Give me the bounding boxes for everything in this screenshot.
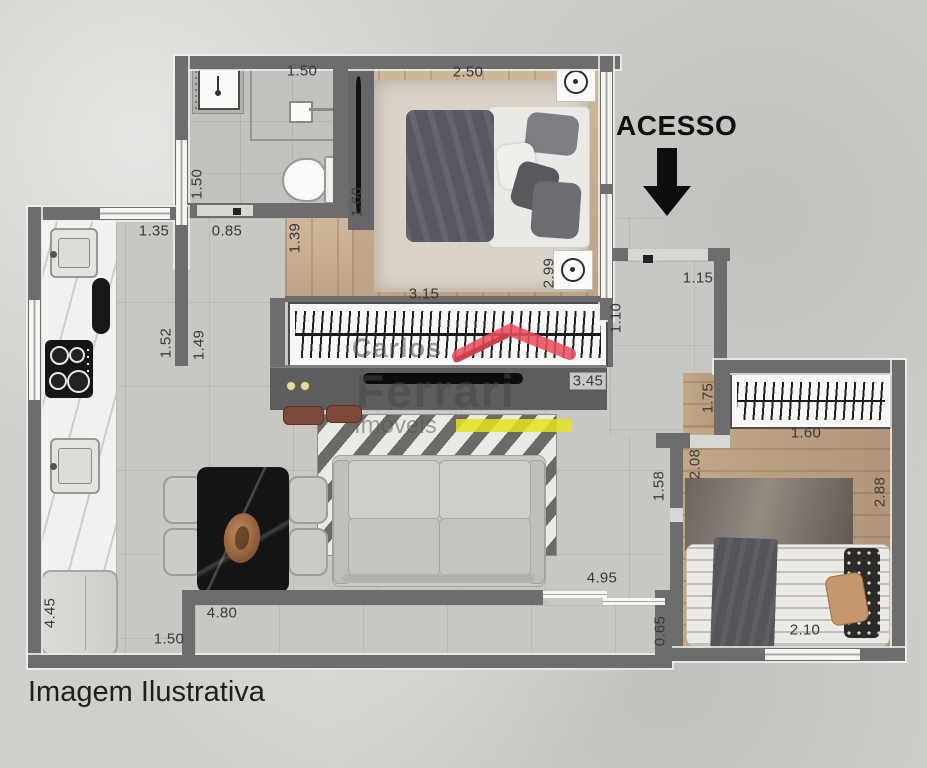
wall-balcony-top bbox=[182, 590, 543, 605]
measurement-label: 1.60 bbox=[349, 187, 366, 217]
measurement-label: 4.80 bbox=[207, 605, 237, 622]
access-arrow-icon bbox=[657, 148, 677, 188]
bed-blanket bbox=[710, 537, 778, 651]
kitchen-sink-bottom bbox=[50, 438, 100, 494]
measurement-label: 1.50 bbox=[287, 63, 317, 80]
access-label: ACESSO bbox=[616, 110, 737, 142]
measurement-label: 1.49 bbox=[191, 330, 208, 360]
sofa-back-cushion bbox=[348, 460, 440, 520]
measurement-label: 0.85 bbox=[212, 223, 242, 240]
window-bedroom2-bottom bbox=[765, 649, 860, 660]
sofa-seat-cushion bbox=[348, 518, 440, 576]
dining-table bbox=[197, 467, 289, 593]
window-bathroom-left bbox=[176, 140, 187, 225]
kitchen-island bbox=[270, 365, 607, 410]
measurement-label: 3.45 bbox=[570, 373, 606, 390]
door-opening-entry bbox=[628, 249, 708, 260]
door-jamb-entry bbox=[643, 255, 653, 263]
measurement-label: 1.10 bbox=[608, 303, 625, 333]
wall-bathroom-bedroom-divider bbox=[333, 56, 348, 212]
wall-top bbox=[175, 56, 620, 69]
door-opening-bedroom2 bbox=[690, 435, 730, 448]
measurement-label: 1.75 bbox=[700, 383, 717, 413]
bed-duvet bbox=[406, 110, 494, 242]
ceiling-point-dot bbox=[573, 79, 578, 84]
measurement-label: 1.35 bbox=[139, 223, 169, 240]
measurement-label: 1.39 bbox=[287, 223, 304, 253]
bedroom1-closet bbox=[288, 302, 608, 367]
faucet-icon bbox=[50, 463, 57, 470]
balcony-floor bbox=[195, 605, 655, 655]
floor-plan-canvas: ACESSO Carlos Ferrari Imóveis Imagem Ilu… bbox=[0, 0, 927, 768]
wall-hall-top-left bbox=[613, 248, 628, 261]
bar-stool bbox=[326, 405, 362, 423]
island-knob-icon bbox=[300, 381, 310, 391]
pillow bbox=[530, 180, 582, 239]
kitchen-appliance-black bbox=[92, 278, 110, 334]
door-notch-bedroom2-left bbox=[670, 508, 683, 522]
wall-bedroom2-right bbox=[892, 360, 905, 661]
bedroom2-closet bbox=[730, 373, 892, 429]
wall-bottom bbox=[28, 655, 672, 668]
measurement-label: 4.95 bbox=[587, 570, 617, 587]
measurement-label: 2.10 bbox=[790, 622, 820, 639]
sofa-seat-cushion bbox=[439, 518, 531, 576]
watermark-yellow-bar bbox=[456, 419, 572, 432]
measurement-label: 2.88 bbox=[872, 477, 889, 507]
wall-corridor bbox=[175, 218, 188, 366]
wall-bedroom2-top bbox=[714, 360, 905, 373]
wall-bedroom2-door bbox=[656, 433, 690, 448]
sofa-back-cushion bbox=[439, 460, 531, 520]
burner-icon bbox=[50, 346, 69, 365]
measurement-label: 1.58 bbox=[651, 471, 668, 501]
sofa-front-rail bbox=[343, 574, 535, 583]
faucet-icon bbox=[217, 76, 219, 90]
sofa bbox=[332, 455, 546, 587]
wall-left bbox=[28, 207, 41, 668]
ceiling-point-dot bbox=[570, 267, 575, 272]
centerpiece-inner bbox=[233, 525, 250, 551]
kitchen-sink-top bbox=[50, 228, 98, 278]
wall-hall-right bbox=[714, 248, 727, 373]
island-cooktop-icon bbox=[363, 373, 523, 384]
measurement-label: 2.50 bbox=[453, 64, 483, 81]
door-jamb-bathroom bbox=[233, 208, 241, 215]
island-knob-icon bbox=[286, 381, 296, 391]
window-bedroom1-right-2 bbox=[601, 194, 612, 298]
measurement-label: 0.65 bbox=[652, 616, 669, 646]
cooktop bbox=[45, 340, 93, 398]
measurement-label: 1.50 bbox=[189, 169, 206, 199]
faucet-dot-icon bbox=[215, 90, 221, 96]
wall-balcony-left bbox=[182, 590, 195, 668]
burner-icon bbox=[69, 347, 85, 363]
dining-chair bbox=[288, 528, 328, 576]
measurement-label: 1.52 bbox=[158, 328, 175, 358]
faucet-icon bbox=[50, 251, 57, 258]
closet-hangers-icon bbox=[737, 382, 885, 420]
window-kitchen-top bbox=[100, 208, 170, 219]
bathroom-sink bbox=[198, 68, 240, 110]
measurement-label: 3.15 bbox=[409, 286, 439, 303]
caption-text: Imagem Ilustrativa bbox=[28, 676, 265, 709]
cooktop-knobs-icon bbox=[87, 348, 89, 372]
fridge-door-seam bbox=[85, 576, 86, 650]
measurement-label: 1.15 bbox=[683, 270, 713, 287]
measurement-label: 1.60 bbox=[791, 425, 821, 442]
measurement-label: 4.45 bbox=[42, 598, 59, 628]
closet-hangers-icon bbox=[295, 311, 601, 358]
sliding-door-panel-2 bbox=[603, 598, 665, 605]
wall-closet1-top bbox=[285, 296, 613, 302]
ceiling-point-icon bbox=[553, 250, 593, 290]
access-arrow-head-icon bbox=[643, 186, 691, 216]
shower-partition-line-h bbox=[250, 139, 333, 141]
wall-closet1-left bbox=[270, 298, 285, 367]
door-opening-bathroom bbox=[197, 205, 253, 216]
burner-icon bbox=[67, 370, 90, 393]
toilet-bowl bbox=[282, 158, 328, 202]
shower-partition-line-v bbox=[250, 69, 252, 141]
window-bedroom1-right-1 bbox=[601, 72, 612, 184]
sliding-door-panel-1 bbox=[543, 591, 607, 598]
burner-icon bbox=[49, 372, 67, 390]
bar-stool bbox=[283, 406, 324, 425]
bedroom2-bed bbox=[686, 540, 890, 648]
table-centerpiece bbox=[221, 511, 264, 566]
sink-basin bbox=[58, 448, 92, 484]
measurement-label: 1.50 bbox=[154, 631, 184, 648]
shower-head-icon bbox=[289, 101, 313, 123]
measurement-label: 2.99 bbox=[541, 258, 558, 288]
measurement-label: 2.08 bbox=[687, 449, 704, 479]
sink-basin bbox=[58, 238, 90, 268]
bedroom1-bed bbox=[406, 106, 588, 246]
window-left-wall bbox=[29, 300, 40, 400]
dining-chair bbox=[288, 476, 328, 524]
